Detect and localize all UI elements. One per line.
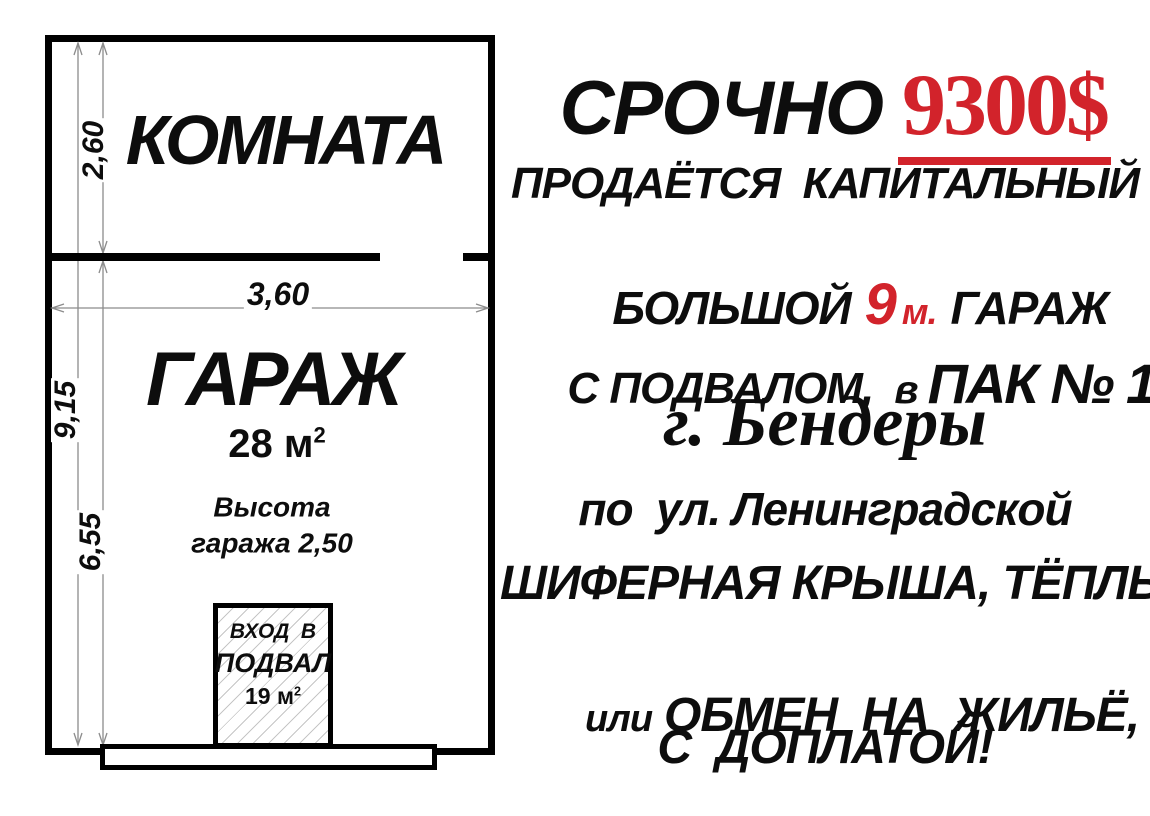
garage-height-note: Высотагаража 2,50 <box>191 490 353 563</box>
dim-label-total-height: 9,15 <box>51 378 81 442</box>
urgent-text: СРОЧНО <box>560 66 882 151</box>
height-note-line2: гаража 2,50 <box>191 528 353 559</box>
cellar-area: 19 м2 <box>245 683 301 710</box>
city-line: г. Бендеры <box>500 388 1150 458</box>
garage-area-sup: 2 <box>313 423 325 448</box>
divider-wall-left <box>52 253 380 261</box>
headline: СРОЧНО9300$ <box>500 46 1150 166</box>
dim-label-width: 3,60 <box>244 278 312 310</box>
height-note-line1: Высота <box>213 492 330 523</box>
garage-area-value: 28 м <box>228 422 313 466</box>
dim-label-garage-height: 6,55 <box>76 510 106 574</box>
cellar-line2: ПОДВАЛ <box>215 648 331 679</box>
divider-wall-right <box>463 253 488 261</box>
cellar-area-value: 19 м <box>245 683 294 709</box>
price-text: 9300$ <box>898 57 1111 165</box>
garage-label: ГАРАЖ <box>146 342 400 418</box>
room-label: КОМНАТА <box>126 105 445 175</box>
ad-text-column: СРОЧНО9300$ ПРОДАЁТСЯ КАПИТАЛЬНЫЙ БОЛЬШО… <box>500 0 1150 816</box>
ad-poster: 2,60 9,15 6,55 3,60 КОМНАТА ГАРАЖ 28 м2 … <box>0 0 1150 816</box>
floor-plan: 2,60 9,15 6,55 3,60 КОМНАТА ГАРАЖ 28 м2 … <box>45 35 495 755</box>
dim-label-room-height: 2,60 <box>79 118 109 182</box>
cellar-line1: ВХОД В <box>230 620 316 644</box>
garage-area: 28 м2 <box>228 424 325 464</box>
street-line: по ул. Ленинградской <box>500 486 1150 532</box>
line-selling: ПРОДАЁТСЯ КАПИТАЛЬНЫЙ <box>500 162 1150 206</box>
surcharge-line: С ДОПЛАТОЙ! <box>500 724 1150 772</box>
cellar-entrance-box: ВХОД В ПОДВАЛ 19 м2 <box>213 603 333 748</box>
cellar-area-sup: 2 <box>294 684 301 698</box>
garage-gate <box>100 744 437 770</box>
roof-line: ШИФЕРНАЯ КРЫША, ТЁПЛЫЙ <box>500 560 1150 608</box>
